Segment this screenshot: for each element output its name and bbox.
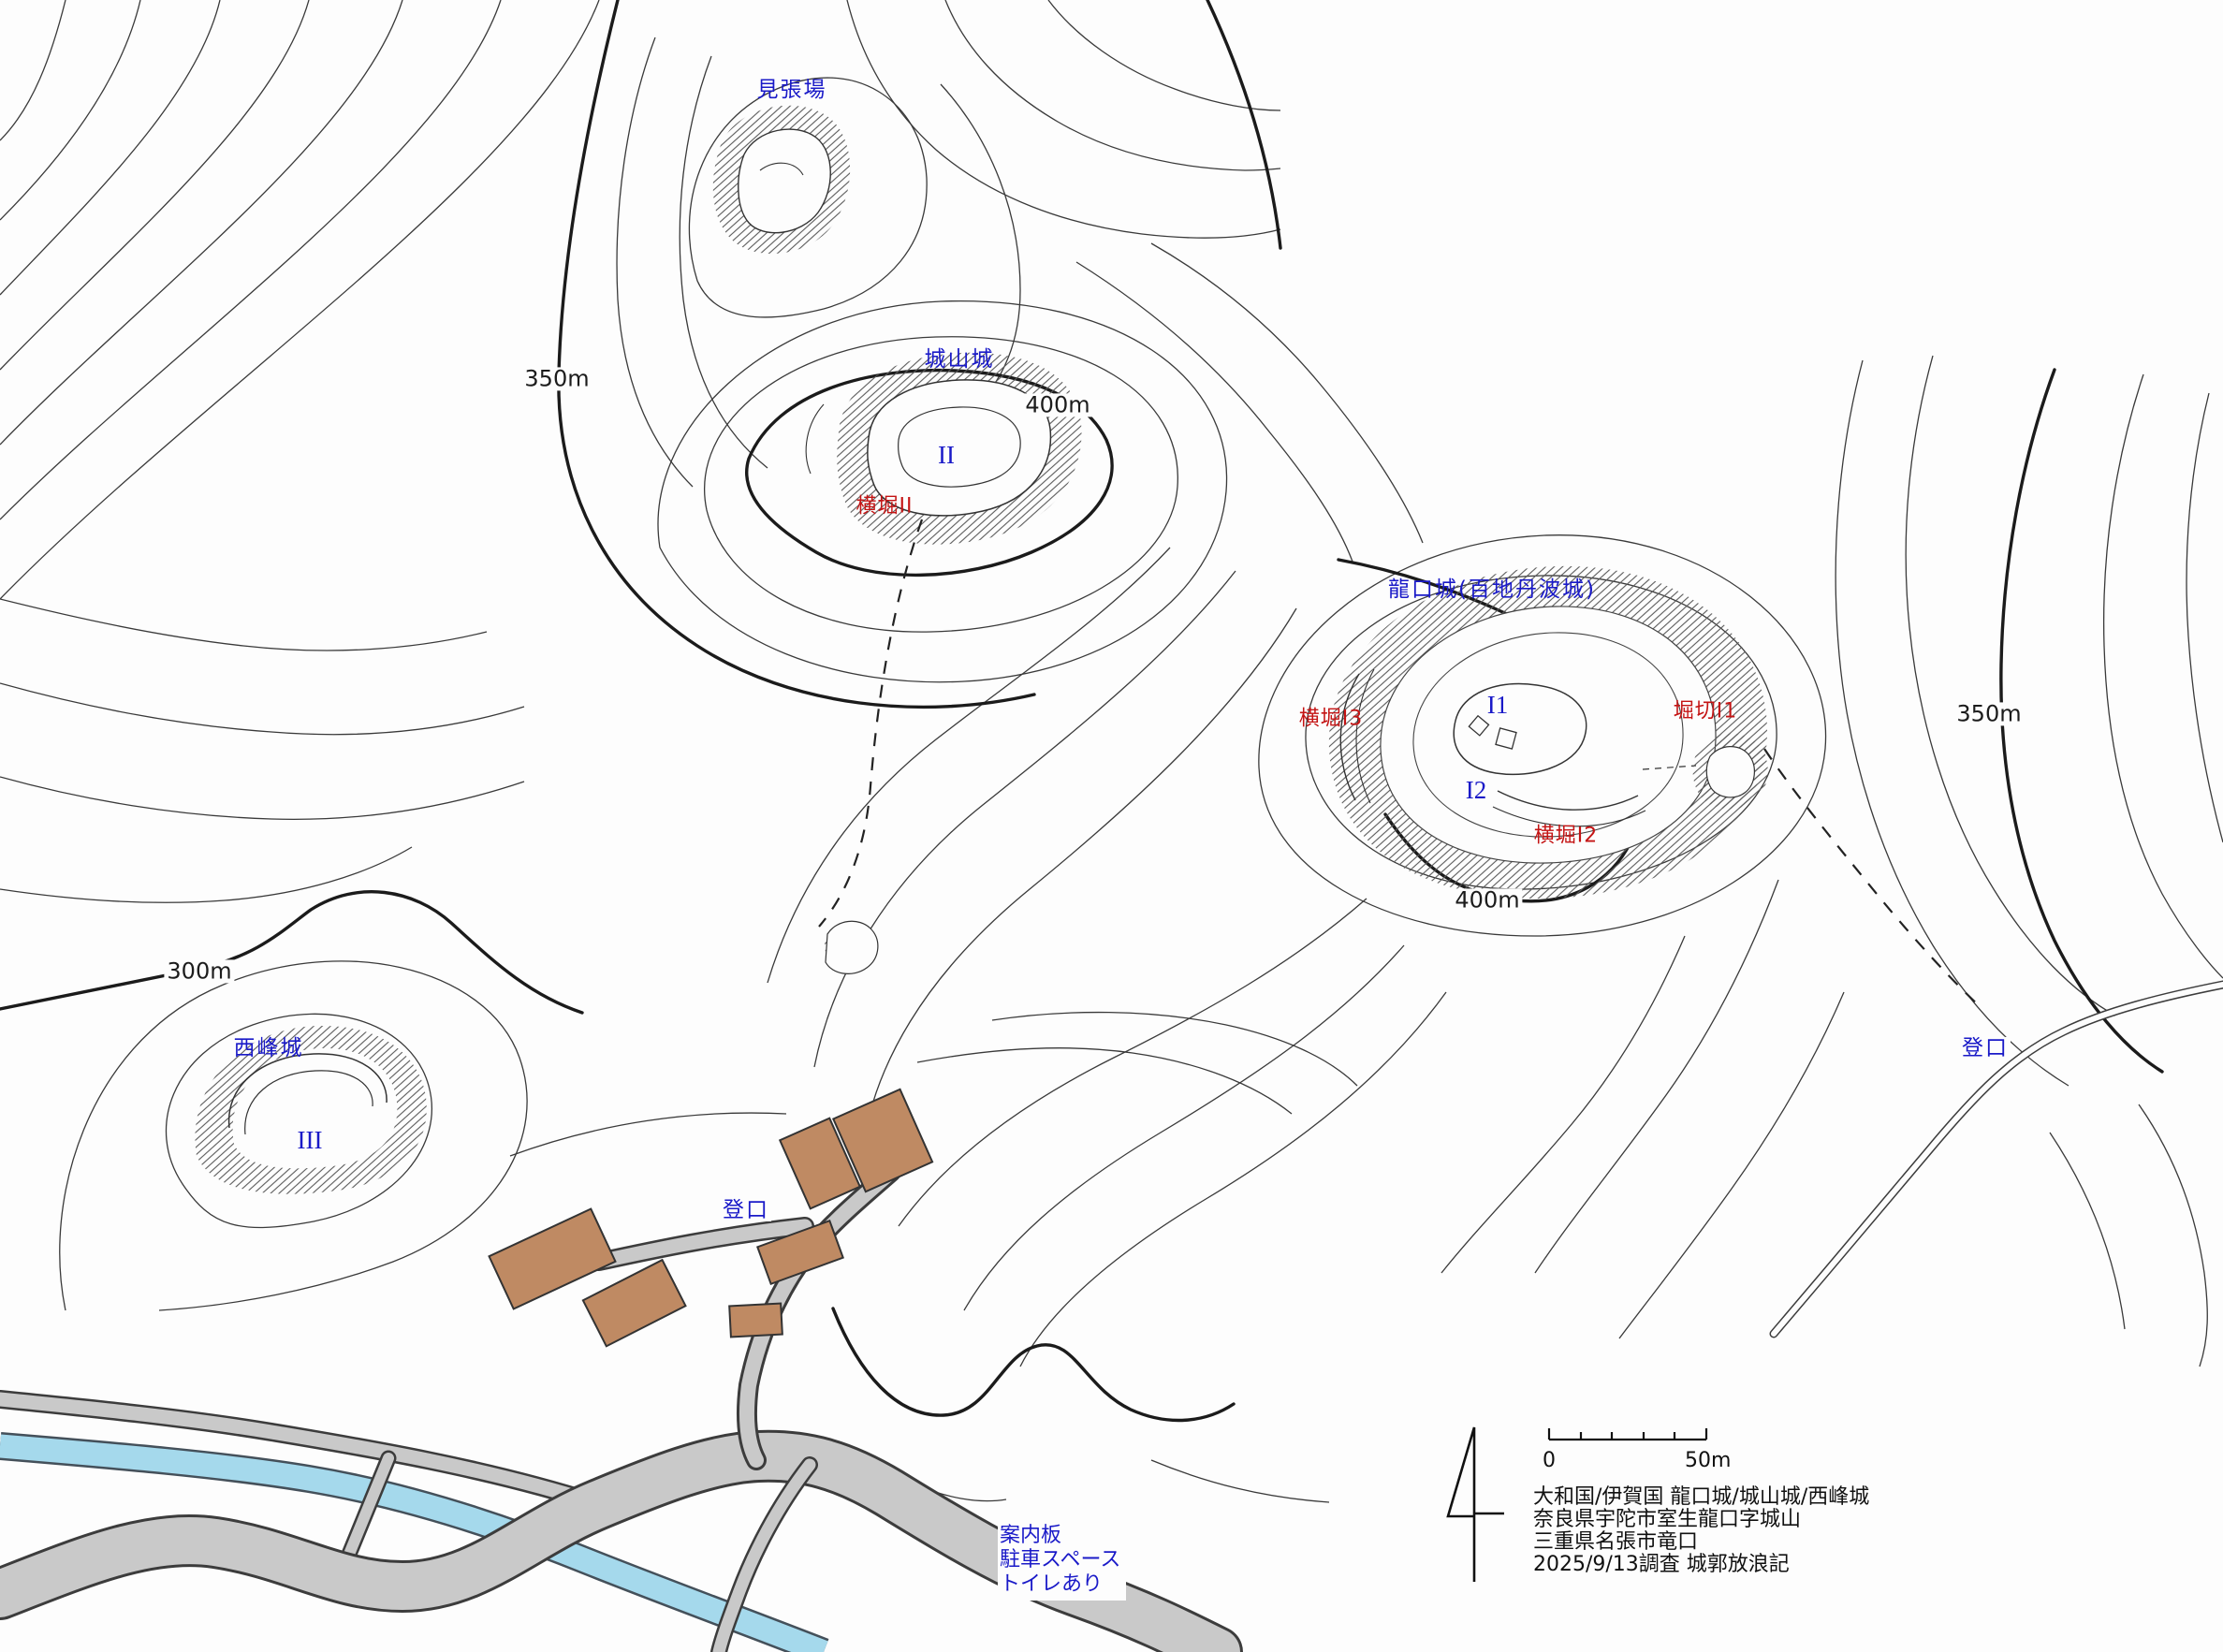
site-label-shiroyamajo: 城山城	[925, 348, 995, 371]
site-label-nishiminejo: 西峰城	[234, 1037, 304, 1060]
map-canvas	[0, 0, 2223, 1652]
elevation-label-350m-nw: 350m	[521, 367, 592, 390]
site-label-miharijo: 見張場	[757, 79, 827, 101]
site-label-tatsuguchijo: 龍口城(百地丹波城)	[1388, 578, 1596, 601]
entrance-label-east: 登口	[1960, 1037, 2011, 1060]
elevation-label-350m-east: 350m	[1953, 702, 2024, 725]
scale-bar	[1549, 1428, 1706, 1440]
fort-nishiminejo	[195, 1026, 426, 1194]
survey-info-line: 三重県名張市竜口	[1533, 1531, 1869, 1554]
survey-info-line: 大和国/伊賀国 龍口城/城山城/西峰城	[1533, 1486, 1869, 1509]
entrance-label-village: 登口	[721, 1199, 771, 1221]
scale-start-label: 0	[1543, 1449, 1556, 1472]
fort-tatsuguchijo	[1329, 566, 1768, 899]
bailey-label-i1: I1	[1487, 692, 1509, 718]
scale-end-label: 50m	[1685, 1449, 1731, 1472]
feature-label-yokobori-i3: 横堀I3	[1299, 708, 1364, 729]
building	[729, 1304, 782, 1338]
index-contours	[0, 0, 2162, 1420]
elevation-label-400m-shiroyama: 400m	[1022, 393, 1092, 417]
amenity-note-line: トイレあり	[1000, 1572, 1120, 1597]
feature-label-yokobori-i2: 横堀I2	[1534, 825, 1599, 846]
survey-info-block: 大和国/伊賀国 龍口城/城山城/西峰城 奈良県宇陀市室生龍口字城山 三重県名張市…	[1533, 1486, 1869, 1576]
survey-info-line: 奈良県宇陀市室生龍口字城山	[1533, 1509, 1869, 1531]
amenity-note-line: 駐車スペース	[1000, 1548, 1120, 1572]
feature-label-horikiri-i1: 堀切I1	[1674, 700, 1738, 722]
feature-label-yokobori-2: 横堀II	[856, 495, 914, 517]
survey-info-line: 2025/9/13調査 城郭放浪記	[1533, 1554, 1869, 1576]
buildings	[490, 1089, 933, 1347]
building	[583, 1260, 686, 1346]
bailey-label-ii: II	[938, 442, 955, 468]
elevation-label-300m: 300m	[164, 959, 234, 983]
elevation-label-400m-tatsuguchi: 400m	[1452, 888, 1522, 912]
contour-lines	[0, 0, 2223, 1502]
amenity-note-line: 案内板	[1000, 1524, 1120, 1548]
small-earthwork	[825, 921, 878, 973]
amenity-note: 案内板 駐車スペース トイレあり	[998, 1522, 1126, 1601]
fort-miharijo	[713, 106, 850, 254]
bailey-label-i2: I2	[1466, 777, 1487, 803]
north-arrow	[1448, 1427, 1504, 1582]
bailey-label-iii: III	[298, 1127, 323, 1153]
castle-survey-map: 見張場 城山城 龍口城(百地丹波城) 西峰城 横堀II 横堀I3 堀切I1 横堀…	[0, 0, 2223, 1652]
